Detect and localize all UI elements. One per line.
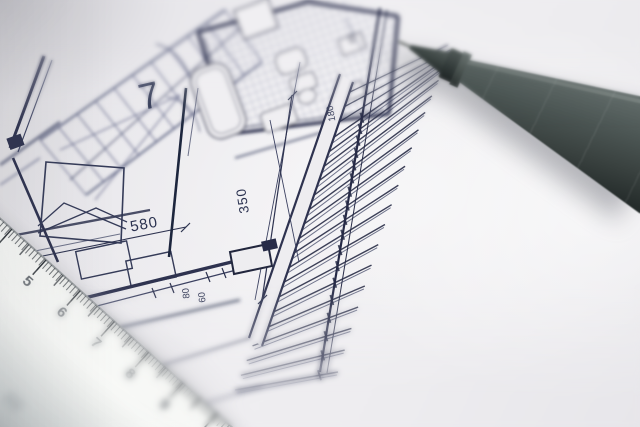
interior-wall-line bbox=[169, 88, 186, 257]
door-swing-arc bbox=[156, 44, 194, 92]
dimension-85-label: 85 bbox=[346, 33, 358, 45]
bathroom bbox=[187, 0, 398, 143]
room-number-label: 7 bbox=[135, 74, 164, 119]
dimension-350-label: 350 bbox=[233, 187, 252, 215]
wall-piers bbox=[230, 238, 278, 274]
dimension-80-label: 80 bbox=[180, 287, 192, 299]
dimension-580-label: 580 bbox=[129, 214, 160, 236]
photo-scene: 85 7 bbox=[0, 0, 640, 427]
dimension-60-label: 60 bbox=[196, 291, 208, 303]
